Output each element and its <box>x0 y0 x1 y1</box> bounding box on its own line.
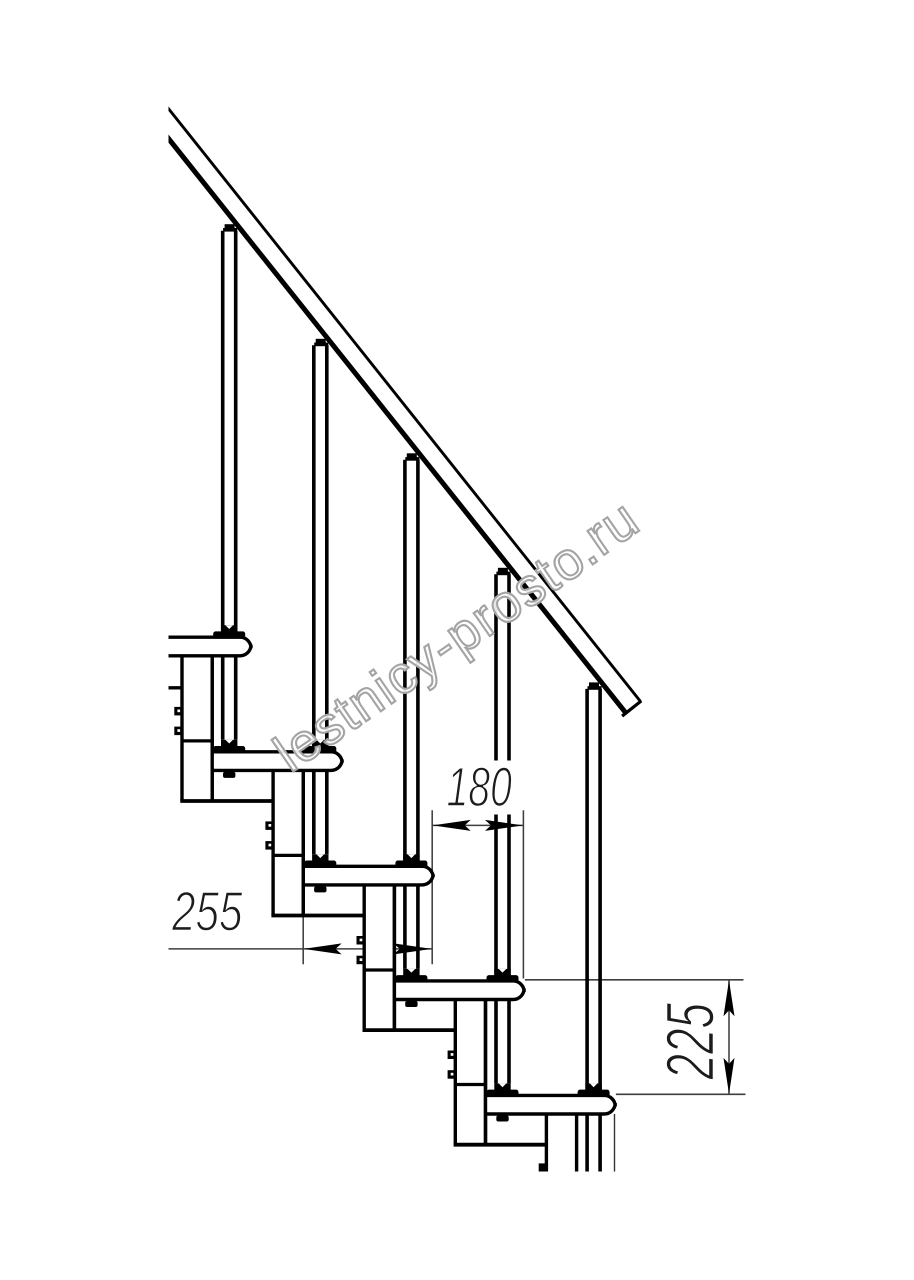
svg-text:180: 180 <box>447 756 512 819</box>
svg-text:225: 225 <box>653 1002 729 1080</box>
svg-text:255: 255 <box>171 880 243 943</box>
